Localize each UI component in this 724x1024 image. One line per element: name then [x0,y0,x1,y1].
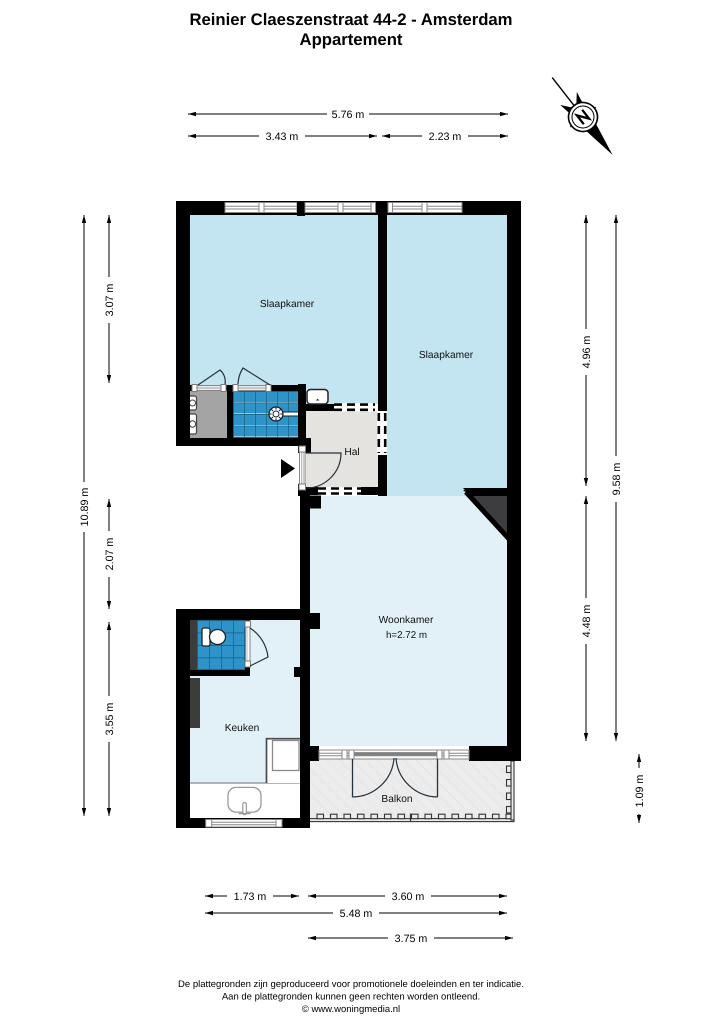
svg-text:Hal: Hal [344,447,359,458]
svg-text:3.07 m: 3.07 m [104,284,116,317]
svg-text:3.75 m: 3.75 m [395,933,428,945]
svg-text:h=2.72 m: h=2.72 m [386,630,427,641]
svg-text:1.09 m: 1.09 m [634,775,646,808]
svg-text:Aan de plattegronden kunnen ge: Aan de plattegronden kunnen geen rechten… [222,992,480,1003]
svg-text:Woonkamer: Woonkamer [379,615,434,626]
svg-text:4.96 m: 4.96 m [581,336,593,369]
svg-text:Reinier Claeszenstraat 44-2 -: Reinier Claeszenstraat 44-2 - Amsterdam [189,10,512,29]
svg-text:3.55 m: 3.55 m [104,703,116,736]
svg-text:2.07 m: 2.07 m [104,538,116,571]
svg-text:3.60 m: 3.60 m [392,891,425,903]
svg-text:10.89 m: 10.89 m [79,488,91,527]
svg-text:Appartement: Appartement [300,30,403,49]
svg-text:3.43 m: 3.43 m [266,131,299,143]
svg-text:© www.woningmedia.nl: © www.woningmedia.nl [302,1004,400,1015]
svg-text:2.23 m: 2.23 m [429,131,462,143]
svg-text:5.76 m: 5.76 m [332,109,365,121]
svg-text:9.58 m: 9.58 m [611,463,623,496]
svg-text:1.73 m: 1.73 m [234,891,267,903]
svg-text:Slaapkamer: Slaapkamer [419,350,474,361]
svg-text:Slaapkamer: Slaapkamer [260,299,315,310]
svg-text:De plattegronden zijn geproduc: De plattegronden zijn geproduceerd voor … [178,979,524,990]
svg-text:4.48 m: 4.48 m [581,605,593,638]
svg-text:Balkon: Balkon [381,794,412,805]
svg-text:5.48 m: 5.48 m [340,908,373,920]
svg-text:Keuken: Keuken [225,723,260,734]
